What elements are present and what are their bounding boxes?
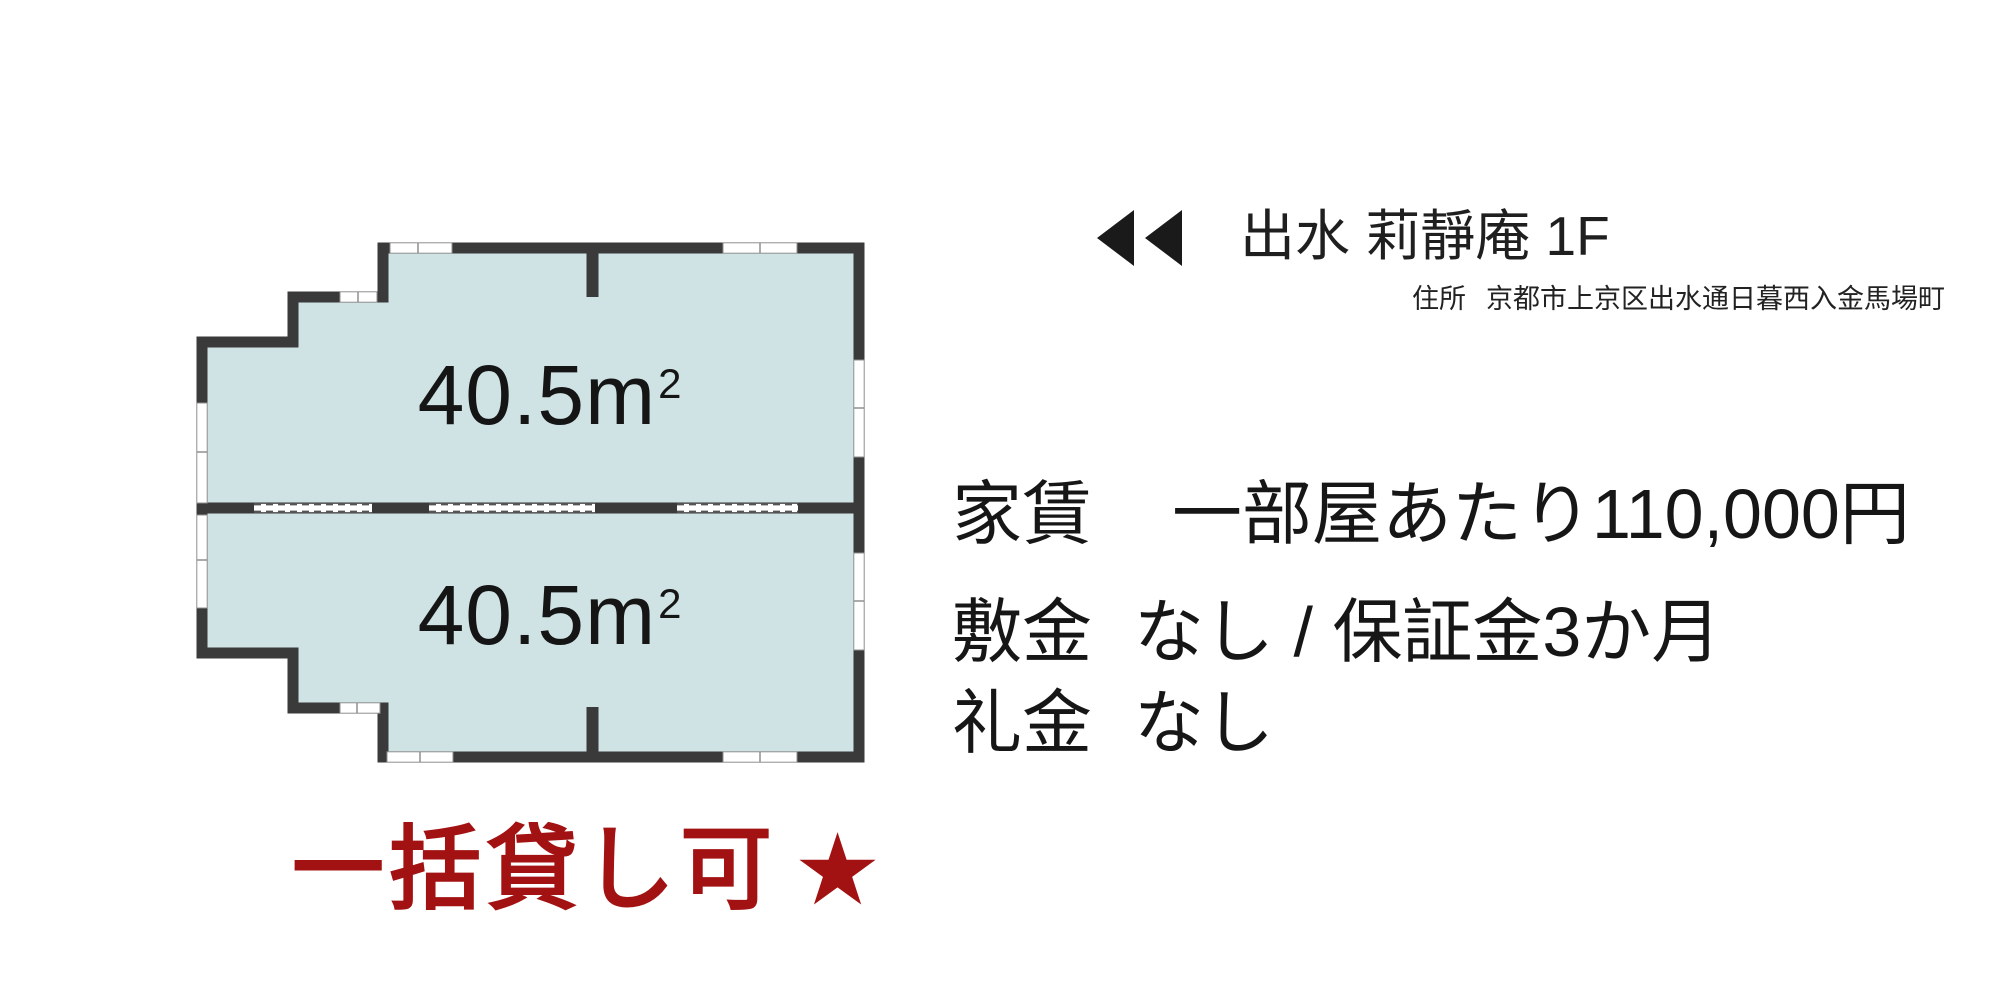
sliding-door: [429, 504, 595, 512]
key-money-label: 礼金: [952, 683, 1092, 764]
wall-stub: [587, 246, 599, 297]
flyer-page: 40.5m2 40.5m2 出水 莉靜庵 1F 住所 京都市上京区出水通日暮西入…: [0, 0, 2006, 997]
banner-text: 一括貸し可: [292, 819, 777, 921]
star-icon: ★: [793, 815, 882, 926]
key-money-row: 礼金 なし: [952, 683, 1274, 764]
middle-wall: [197, 503, 865, 514]
window: [854, 360, 864, 457]
window: [390, 243, 452, 253]
address-label: 住所: [1412, 277, 1466, 316]
double-left-triangles-icon: [1097, 210, 1182, 266]
address-row: 住所 京都市上京区出水通日暮西入金馬場町: [1412, 277, 1945, 316]
window: [387, 752, 453, 762]
window: [723, 243, 797, 253]
window: [197, 403, 207, 503]
left-triangle-icon: [1097, 210, 1134, 266]
left-triangle-icon: [1145, 210, 1182, 266]
page-title: 出水 莉靜庵 1F: [1240, 206, 1610, 267]
key-money-value: なし: [1134, 683, 1274, 764]
window: [723, 752, 797, 762]
rent-value: 一部屋あたり110,000円: [1172, 474, 1910, 555]
area-value: 40.5: [418, 568, 586, 662]
wall-stub: [587, 707, 599, 753]
area-unit: m2: [585, 568, 682, 662]
sliding-door: [254, 504, 372, 512]
window: [340, 703, 380, 713]
window: [340, 292, 377, 302]
deposit-value: なし / 保証金3か月: [1134, 592, 1721, 673]
sliding-door: [677, 504, 798, 512]
bulk-lease-banner: 一括貸し可★: [292, 816, 882, 925]
rent-label: 家賃: [952, 474, 1092, 555]
room-area-label-lower: 40.5m2: [395, 573, 705, 657]
window: [854, 553, 864, 650]
window: [197, 515, 207, 608]
area-value: 40.5: [418, 348, 586, 442]
room-area-label-upper: 40.5m2: [395, 353, 705, 437]
floorplan-diagram: [190, 236, 880, 776]
deposit-row: 敷金 なし / 保証金3か月: [952, 592, 1721, 673]
deposit-label: 敷金: [952, 592, 1092, 673]
address-value: 京都市上京区出水通日暮西入金馬場町: [1486, 277, 1945, 316]
area-unit: m2: [585, 348, 682, 442]
rent-row: 家賃 一部屋あたり110,000円: [952, 474, 1910, 555]
